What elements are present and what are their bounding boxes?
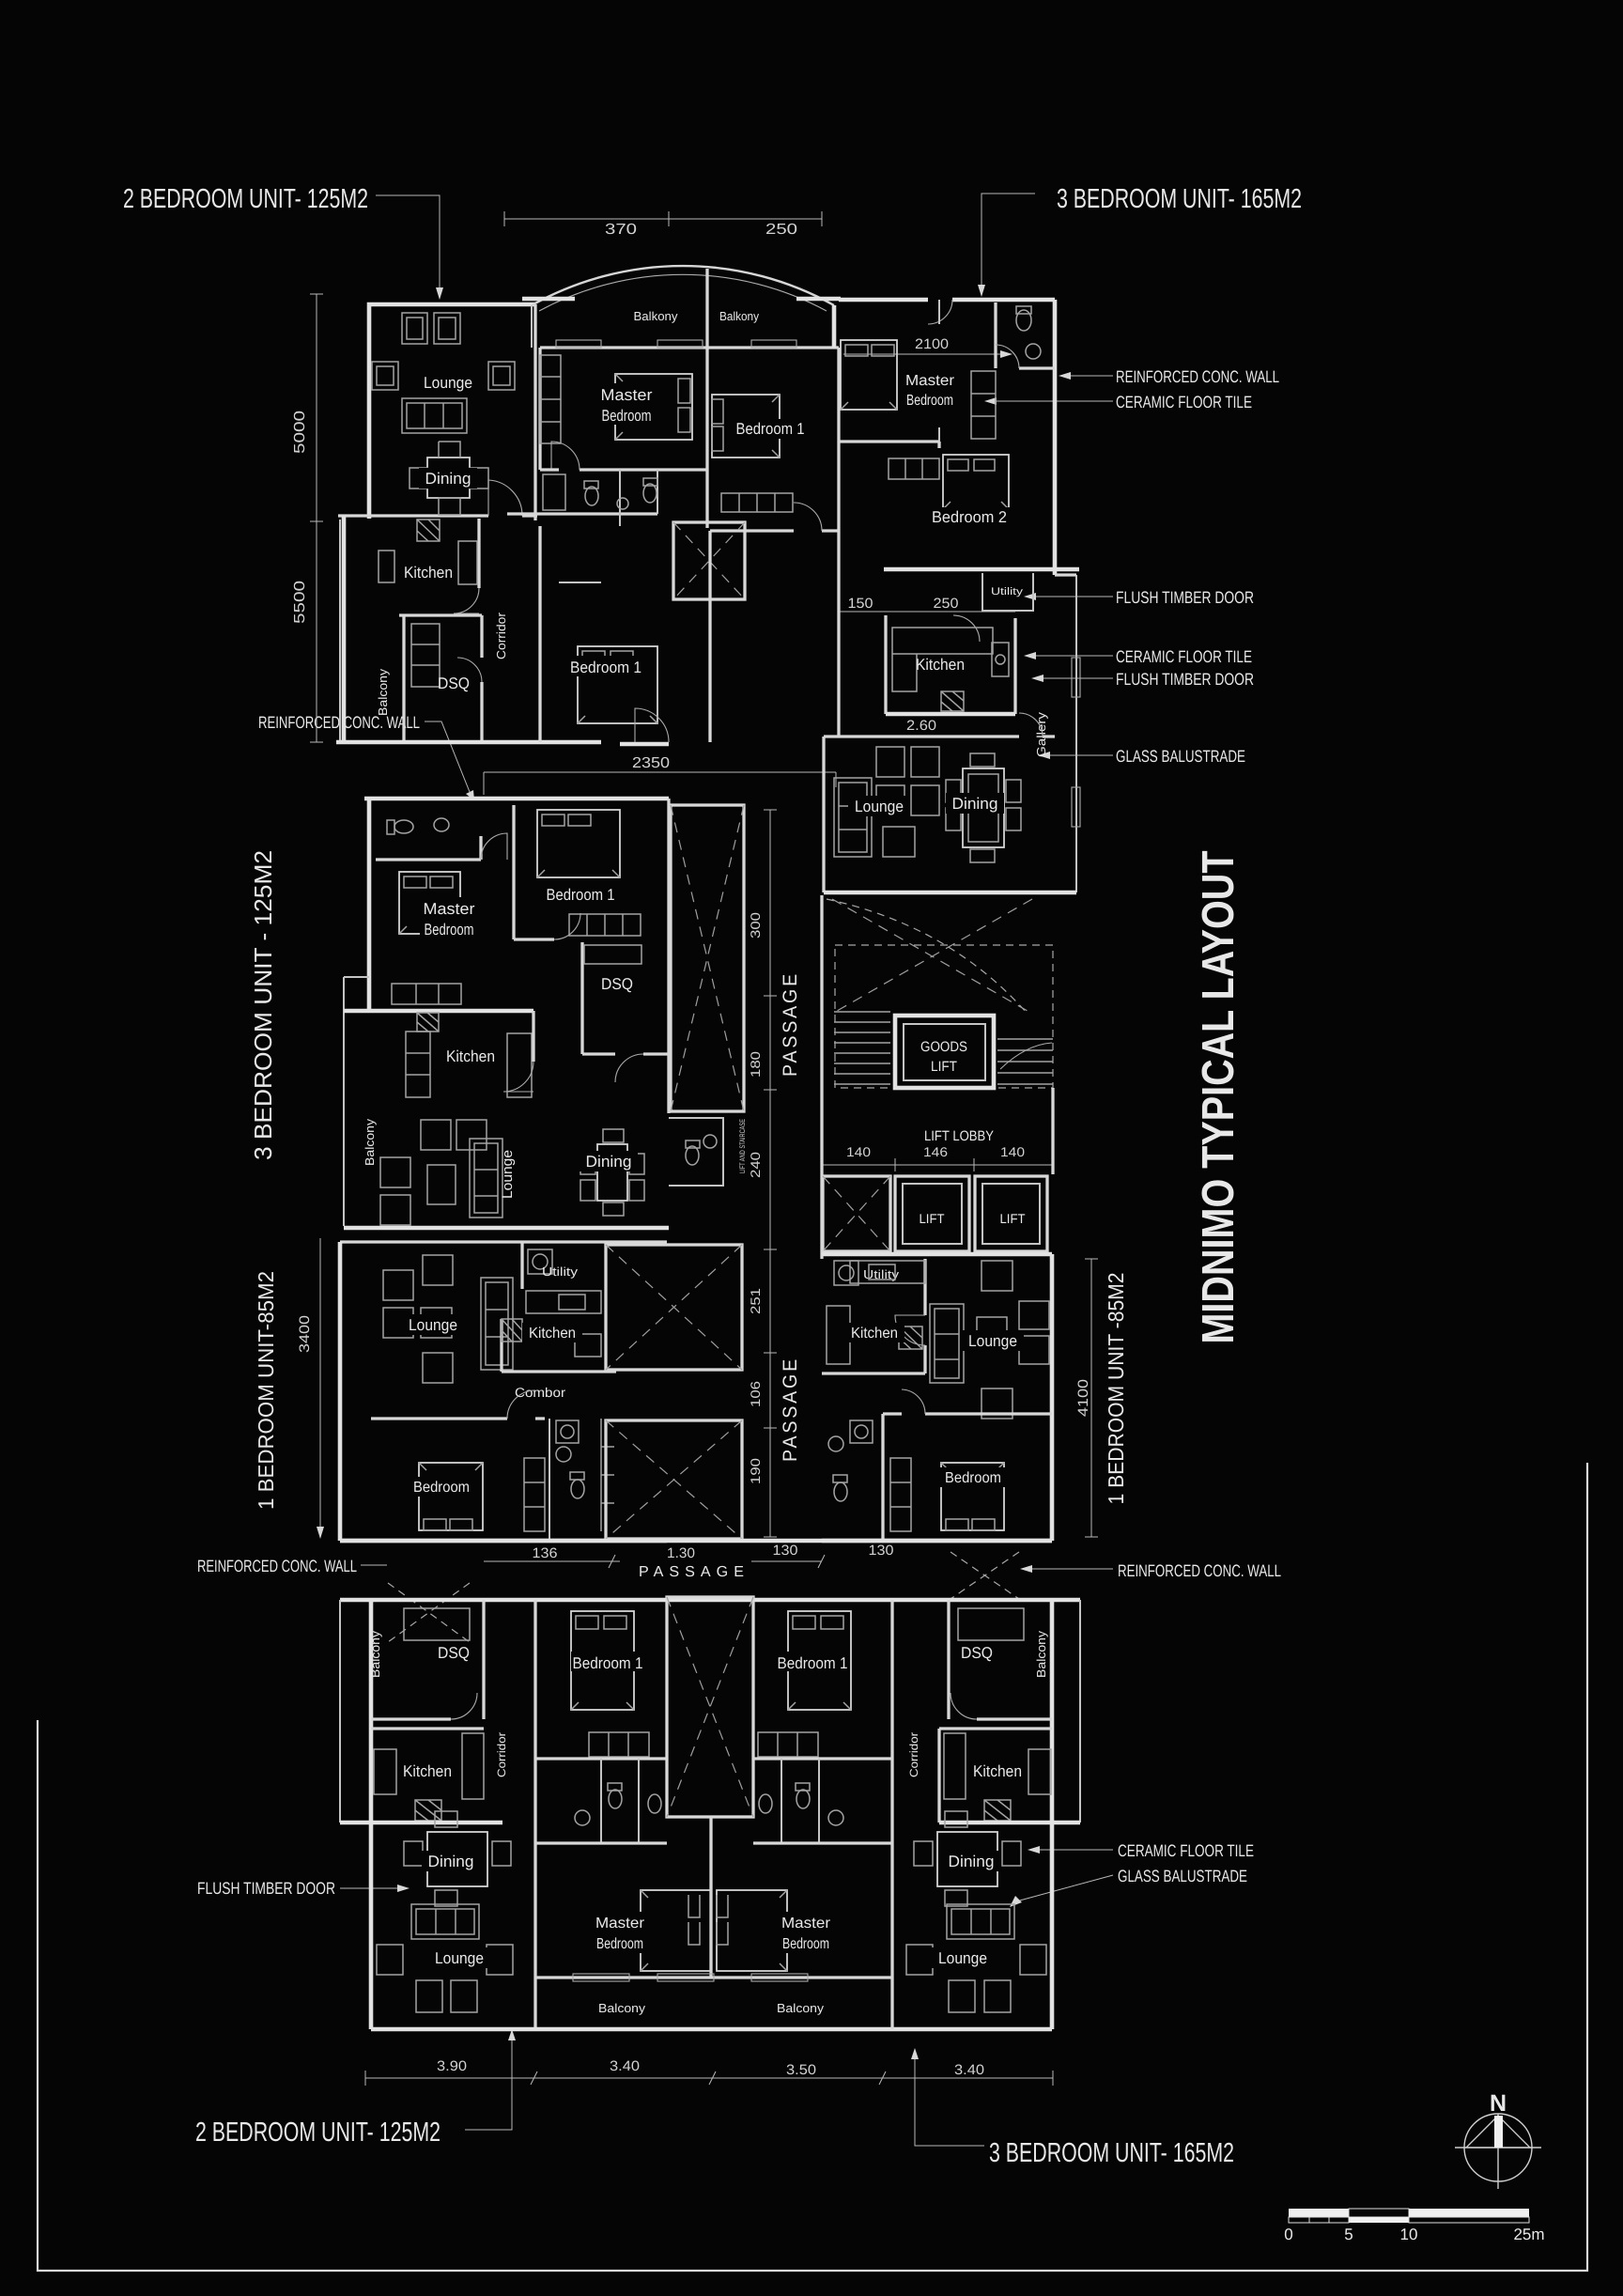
svg-text:PASSAGE: PASSAGE [780,971,801,1077]
svg-text:Lounge: Lounge [435,1949,484,1967]
svg-text:25m: 25m [1513,2226,1544,2243]
svg-text:3 BEDROOM UNIT - 125M2: 3 BEDROOM UNIT - 125M2 [249,850,277,1160]
svg-text:1 BEDROOM UNIT-85M2: 1 BEDROOM UNIT-85M2 [254,1271,278,1510]
svg-text:PASSAGE: PASSAGE [780,1357,801,1462]
svg-text:CERAMIC FLOOR TILE: CERAMIC FLOOR TILE [1116,647,1252,666]
svg-text:2350: 2350 [632,755,670,771]
svg-text:LIFT: LIFT [1000,1211,1026,1226]
svg-text:LIFT: LIFT [920,1211,945,1226]
svg-text:0: 0 [1284,2226,1292,2243]
svg-text:106: 106 [748,1381,763,1407]
svg-text:Bedroom: Bedroom [425,921,474,939]
svg-text:5500: 5500 [292,581,308,624]
svg-text:Balcony: Balcony [376,668,390,716]
svg-text:Utility: Utility [542,1264,579,1279]
svg-text:240: 240 [748,1152,763,1178]
svg-text:140: 140 [846,1144,871,1159]
svg-text:Lounge: Lounge [409,1316,457,1334]
svg-text:Dining: Dining [952,795,998,813]
svg-text:Gallery: Gallery [1034,711,1048,757]
svg-text:Kitchen: Kitchen [446,1047,495,1065]
svg-text:370: 370 [605,222,637,238]
svg-text:LIFT: LIFT [931,1059,957,1075]
svg-text:Bedroom: Bedroom [413,1480,470,1496]
svg-text:Lounge: Lounge [938,1949,987,1967]
svg-text:150: 150 [848,596,873,612]
svg-text:FLUSH TIMBER DOOR: FLUSH TIMBER DOOR [1116,588,1254,607]
svg-text:Bedroom 1: Bedroom 1 [570,659,641,676]
svg-text:5: 5 [1344,2226,1352,2243]
svg-text:Balcony: Balcony [363,1118,377,1166]
svg-text:1 BEDROOM UNIT -85M2: 1 BEDROOM UNIT -85M2 [1104,1273,1128,1505]
svg-text:Bedroom: Bedroom [782,1936,829,1952]
svg-text:Bedroom 1: Bedroom 1 [778,1654,848,1672]
svg-text:Master: Master [905,373,955,389]
svg-text:DSQ: DSQ [601,975,633,993]
svg-text:Bedroom: Bedroom [596,1936,643,1952]
svg-text:LIFT LOBBY: LIFT LOBBY [924,1128,994,1144]
svg-text:REINFORCED CONC. WALL: REINFORCED CONC. WALL [1118,1561,1281,1580]
svg-text:2.60: 2.60 [906,718,936,734]
svg-text:Combor: Combor [515,1385,565,1400]
svg-text:4100: 4100 [1075,1379,1091,1417]
svg-text:3 BEDROOM UNIT- 165M2: 3 BEDROOM UNIT- 165M2 [1057,184,1302,214]
svg-text:Dining: Dining [586,1153,632,1171]
svg-text:2 BEDROOM UNIT- 125M2: 2 BEDROOM UNIT- 125M2 [195,2118,441,2148]
svg-text:Kitchen: Kitchen [404,564,453,582]
svg-text:PASSAGE: PASSAGE [639,1564,750,1580]
svg-text:Balkony: Balkony [634,309,679,323]
svg-text:Kitchen: Kitchen [973,1762,1022,1780]
svg-text:10: 10 [1400,2226,1418,2243]
svg-text:Master: Master [424,900,475,918]
svg-text:136: 136 [533,1545,558,1561]
svg-text:Lounge: Lounge [424,374,472,392]
svg-text:3400: 3400 [297,1315,313,1353]
svg-text:Bedroom: Bedroom [945,1470,1001,1486]
svg-text:Lounge: Lounge [855,798,904,815]
svg-text:Utility: Utility [991,586,1024,597]
svg-text:Master: Master [595,1916,645,1931]
svg-text:3.50: 3.50 [786,2062,816,2078]
svg-text:300: 300 [748,912,763,939]
svg-text:180: 180 [748,1051,763,1078]
svg-text:Bedroom 2: Bedroom 2 [932,508,1007,526]
svg-text:GLASS BALUSTRADE: GLASS BALUSTRADE [1118,1867,1247,1885]
svg-text:GOODS: GOODS [920,1039,967,1055]
svg-text:Bedroom 1: Bedroom 1 [547,886,615,904]
svg-text:130: 130 [869,1543,894,1559]
svg-text:DSQ: DSQ [438,1644,470,1662]
svg-text:Kitchen: Kitchen [851,1326,898,1342]
svg-text:250: 250 [765,222,797,238]
svg-text:3.40: 3.40 [610,2058,640,2074]
svg-text:CERAMIC FLOOR TILE: CERAMIC FLOOR TILE [1116,393,1252,411]
svg-text:Corridor: Corridor [494,612,508,659]
svg-text:190: 190 [748,1458,763,1484]
svg-text:Bedroom: Bedroom [602,407,652,425]
svg-text:Lounge: Lounge [968,1332,1017,1350]
svg-text:Bedroom: Bedroom [906,393,953,409]
svg-text:Master: Master [601,386,653,404]
svg-text:Bedroom 1: Bedroom 1 [573,1654,643,1672]
svg-text:Kitchen: Kitchen [529,1326,576,1342]
svg-text:2 BEDROOM UNIT- 125M2: 2 BEDROOM UNIT- 125M2 [123,184,368,214]
svg-text:Dining: Dining [425,470,471,488]
svg-text:Master: Master [781,1916,831,1931]
svg-text:250: 250 [934,596,959,612]
svg-text:Balcony: Balcony [777,2001,825,2015]
svg-text:REINFORCED CONC. WALL: REINFORCED CONC. WALL [197,1557,357,1575]
svg-text:GLASS BALUSTRADE: GLASS BALUSTRADE [1116,747,1245,766]
svg-text:DSQ: DSQ [961,1644,993,1662]
svg-text:MIDNIMO TYPICAL LAYOUT: MIDNIMO TYPICAL LAYOUT [1194,851,1244,1344]
svg-text:REINFORCED CONC. WALL: REINFORCED CONC. WALL [1116,367,1279,386]
svg-text:140: 140 [1000,1144,1025,1159]
svg-text:Balkony: Balkony [719,309,759,323]
svg-text:FLUSH TIMBER DOOR: FLUSH TIMBER DOOR [1116,670,1254,689]
svg-text:FLUSH TIMBER DOOR: FLUSH TIMBER DOOR [197,1879,335,1898]
svg-text:5000: 5000 [292,411,308,454]
svg-text:Balcony: Balcony [598,2001,646,2015]
svg-text:3.40: 3.40 [954,2062,984,2078]
svg-text:251: 251 [748,1288,763,1314]
svg-text:Dining: Dining [428,1853,474,1870]
svg-text:2100: 2100 [915,336,949,352]
svg-text:CERAMIC FLOOR TILE: CERAMIC FLOOR TILE [1118,1841,1254,1860]
svg-text:Corridor: Corridor [495,1732,508,1777]
svg-text:1.30: 1.30 [667,1545,695,1561]
svg-text:Dining: Dining [949,1853,995,1870]
svg-text:LIFT AND STAIRCASE: LIFT AND STAIRCASE [738,1119,747,1173]
svg-text:Bedroom 1: Bedroom 1 [736,420,805,438]
svg-text:Balcony: Balcony [1034,1630,1048,1678]
svg-text:Kitchen: Kitchen [403,1762,452,1780]
svg-text:146: 146 [923,1144,948,1159]
svg-text:Lounge: Lounge [500,1150,516,1199]
svg-text:N: N [1490,2090,1507,2117]
svg-text:Balcony: Balcony [368,1630,382,1678]
svg-text:DSQ: DSQ [438,675,470,692]
svg-text:3.90: 3.90 [437,2058,467,2074]
svg-text:Kitchen: Kitchen [916,656,965,674]
svg-text:Corridor: Corridor [907,1732,920,1777]
svg-text:130: 130 [773,1543,798,1559]
svg-text:3 BEDROOM UNIT- 165M2: 3 BEDROOM UNIT- 165M2 [989,2138,1234,2168]
